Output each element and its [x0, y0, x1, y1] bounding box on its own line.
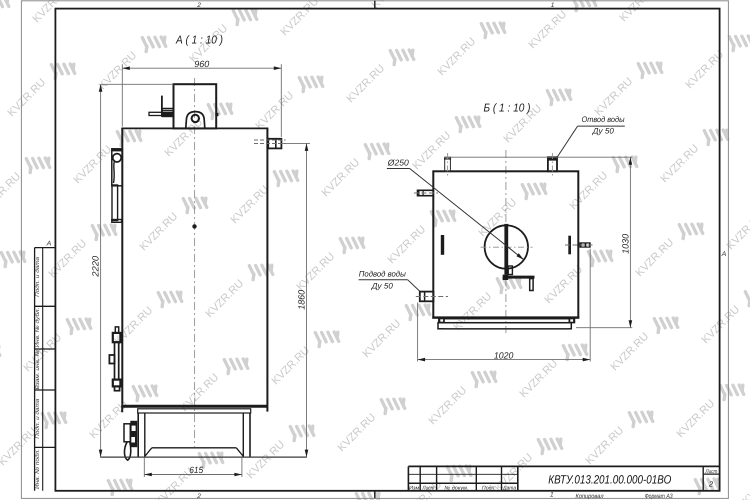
svg-text:Лист: Лист [705, 469, 718, 475]
svg-text:KVZR.RU: KVZR.RU [295, 251, 338, 294]
svg-text:2: 2 [708, 480, 714, 489]
svg-text:KVZR.RU: KVZR.RU [477, 197, 520, 240]
svg-text:KVZR.RU: KVZR.RU [700, 304, 743, 347]
svg-text:Инв. № дубл.: Инв. № дубл. [35, 308, 41, 348]
svg-text:Отвод воды: Отвод воды [582, 115, 625, 124]
svg-text:KVZR.RU: KVZR.RU [452, 291, 495, 334]
svg-text:Подвод воды: Подвод воды [359, 270, 406, 279]
svg-text:2: 2 [196, 2, 201, 9]
svg-text:2: 2 [196, 493, 201, 500]
svg-text:Копировал: Копировал [576, 493, 604, 500]
svg-text:KVZR.RU: KVZR.RU [97, 50, 140, 93]
svg-text:KVZR.RU: KVZR.RU [568, 170, 611, 213]
svg-text:KVZR.RU: KVZR.RU [345, 63, 388, 106]
svg-text:Лист: Лист [422, 485, 435, 491]
svg-text:KVZR.RU: KVZR.RU [436, 36, 479, 79]
svg-text:KVZR.RU: KVZR.RU [0, 171, 23, 214]
svg-text:1: 1 [551, 2, 555, 9]
svg-text:Подп. и дата: Подп. и дата [35, 399, 41, 439]
svg-text:КВТУ.013.201.00.000-01ВО: КВТУ.013.201.00.000-01ВО [548, 472, 671, 486]
svg-text:А: А [46, 241, 52, 248]
svg-text:Ø250: Ø250 [387, 158, 409, 168]
svg-text:Изм: Изм [409, 485, 419, 491]
svg-text:KVZR.RU: KVZR.RU [229, 184, 272, 227]
svg-text:Подп. и дата: Подп. и дата [35, 257, 41, 297]
svg-text:Ду 50: Ду 50 [592, 127, 615, 136]
svg-text:KVZR.RU: KVZR.RU [113, 305, 156, 348]
svg-text:KVZR.RU: KVZR.RU [245, 439, 288, 482]
svg-text:KVZR.RU: KVZR.RU [584, 425, 627, 468]
svg-text:KVZR.RU: KVZR.RU [427, 385, 470, 428]
svg-text:KVZR.RU: KVZR.RU [618, 0, 661, 24]
svg-text:KVZR.RU: KVZR.RU [593, 76, 636, 119]
svg-text:KVZR.RU: KVZR.RU [138, 211, 181, 254]
svg-text:1020: 1020 [494, 350, 514, 360]
svg-text:KVZR.RU: KVZR.RU [609, 331, 652, 374]
svg-text:KVZR.RU: KVZR.RU [659, 143, 702, 186]
svg-text:1: 1 [550, 491, 554, 498]
svg-text:615: 615 [189, 465, 204, 475]
svg-text:1030: 1030 [620, 234, 630, 254]
svg-text:KVZR.RU: KVZR.RU [741, 465, 750, 500]
svg-text:Взам. инв. №: Взам. инв. № [35, 349, 41, 389]
svg-text:KVZR.RU: KVZR.RU [279, 0, 322, 38]
svg-text:KVZR.RU: KVZR.RU [518, 358, 561, 401]
svg-text:KVZR.RU: KVZR.RU [411, 130, 454, 173]
svg-text:Б ( 1 : 10 ): Б ( 1 : 10 ) [484, 102, 531, 114]
svg-text:Формат А3: Формат А3 [645, 493, 673, 500]
svg-text:KVZR.RU: KVZR.RU [361, 318, 404, 361]
svg-text:Дата: Дата [502, 485, 516, 491]
svg-text:KVZR.RU: KVZR.RU [0, 426, 39, 469]
svg-text:2220: 2220 [91, 256, 101, 278]
svg-text:А: А [721, 251, 727, 258]
svg-text:Инв. № подл.: Инв. № подл. [35, 449, 41, 489]
svg-text:KVZR.RU: KVZR.RU [31, 0, 74, 25]
svg-text:KVZR.RU: KVZR.RU [634, 237, 677, 280]
svg-text:Ду 50: Ду 50 [371, 282, 394, 291]
svg-text:Подп.: Подп. [482, 485, 496, 491]
svg-text:KVZR.RU: KVZR.RU [675, 398, 718, 441]
svg-text:960: 960 [194, 59, 209, 69]
svg-text:А ( 1 : 10 ): А ( 1 : 10 ) [175, 34, 223, 46]
svg-text:KVZR.RU: KVZR.RU [204, 278, 247, 321]
svg-text:KVZR.RU: KVZR.RU [6, 77, 49, 120]
svg-text:KVZR.RU: KVZR.RU [320, 157, 363, 200]
svg-text:KVZR.RU: KVZR.RU [72, 144, 115, 187]
svg-text:№ докум.: № докум. [444, 485, 468, 491]
svg-text:KVZR.RU: KVZR.RU [527, 9, 570, 52]
svg-text:KVZR.RU: KVZR.RU [386, 224, 429, 267]
svg-text:KVZR.RU: KVZR.RU [163, 117, 206, 160]
svg-text:KVZR.RU: KVZR.RU [270, 345, 313, 388]
svg-text:KVZR.RU: KVZR.RU [336, 412, 379, 455]
svg-text:KVZR.RU: KVZR.RU [370, 0, 413, 11]
svg-text:KVZR.RU: KVZR.RU [254, 90, 297, 133]
svg-text:1860: 1860 [296, 290, 306, 310]
svg-text:KVZR.RU: KVZR.RU [47, 238, 90, 281]
